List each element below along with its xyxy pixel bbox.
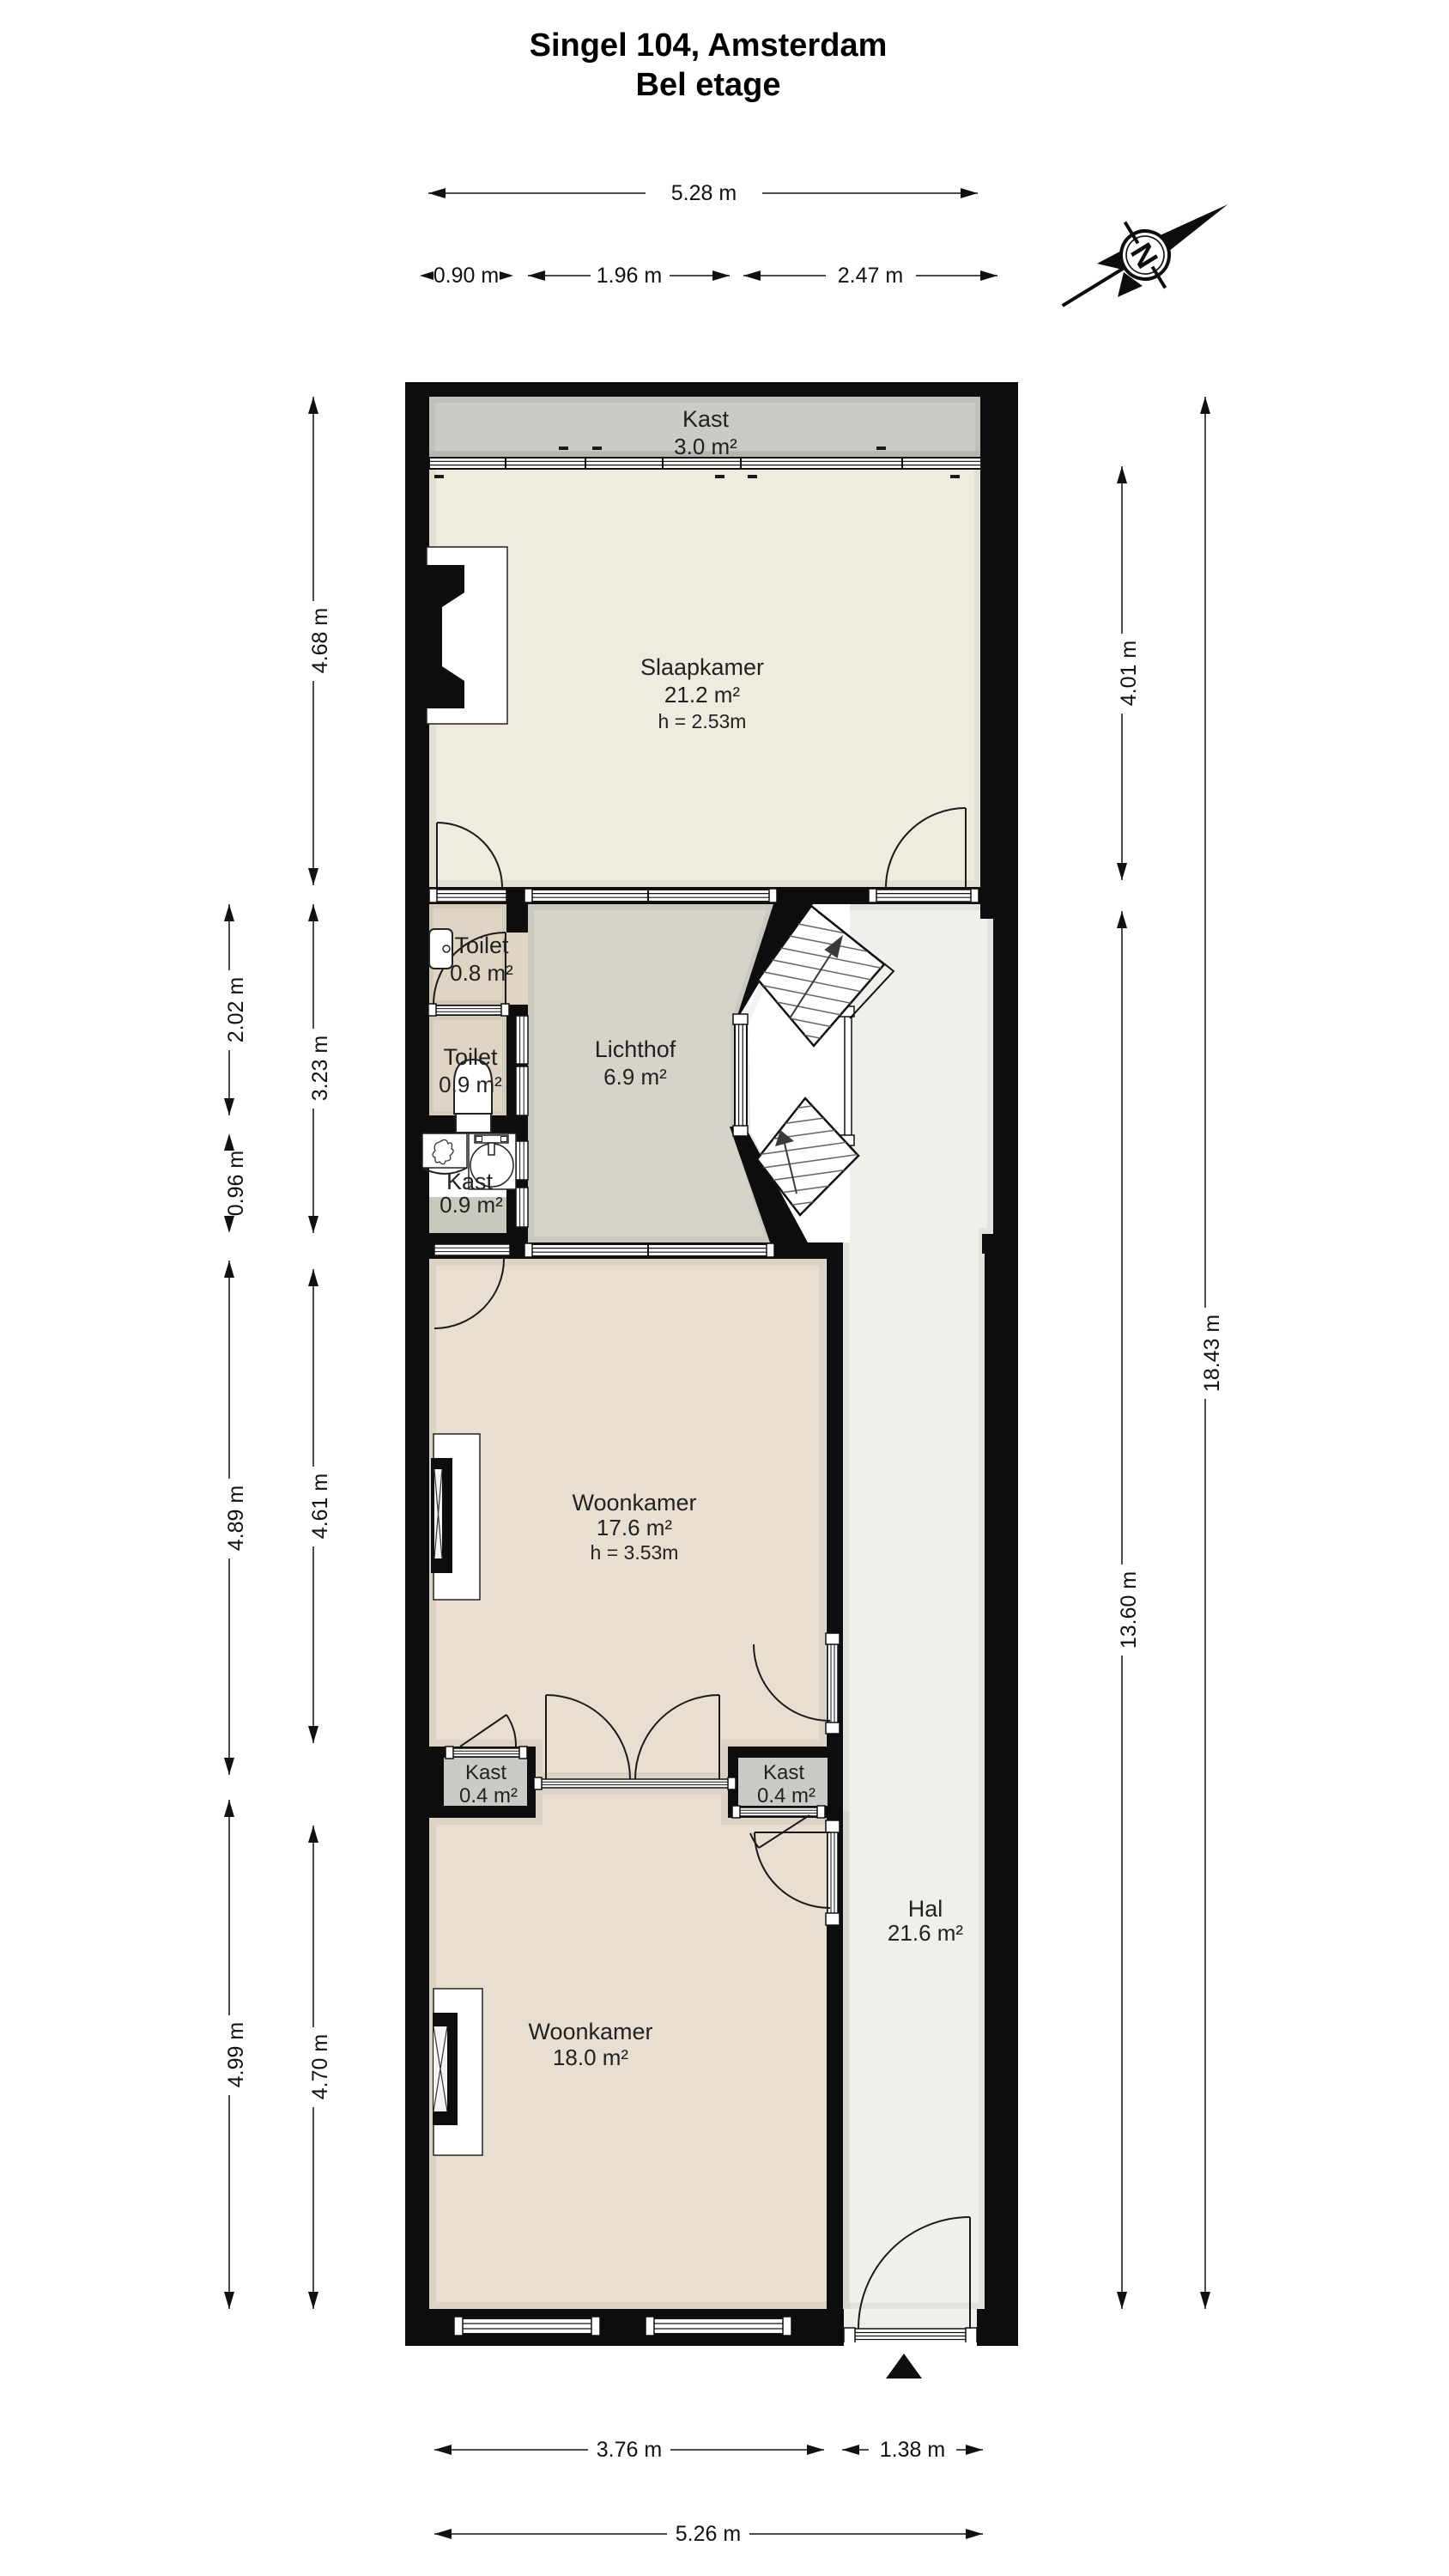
svg-text:3.23 m: 3.23 m bbox=[308, 1036, 332, 1101]
svg-text:0.4 m²: 0.4 m² bbox=[757, 1784, 815, 1807]
svg-text:3.0 m²: 3.0 m² bbox=[674, 434, 737, 459]
svg-text:Hal: Hal bbox=[908, 1896, 943, 1922]
svg-text:h = 3.53m: h = 3.53m bbox=[591, 1541, 679, 1564]
svg-text:4.99 m: 4.99 m bbox=[224, 2022, 248, 2087]
svg-text:1.96 m: 1.96 m bbox=[597, 264, 662, 288]
svg-text:Kast: Kast bbox=[763, 1761, 804, 1784]
svg-text:Woonkamer: Woonkamer bbox=[572, 1490, 696, 1516]
svg-text:Kast: Kast bbox=[682, 406, 730, 432]
svg-text:0.9 m²: 0.9 m² bbox=[440, 1192, 503, 1218]
svg-text:3.76 m: 3.76 m bbox=[597, 2438, 662, 2462]
svg-text:0.90 m: 0.90 m bbox=[433, 264, 499, 288]
svg-text:0.96 m: 0.96 m bbox=[224, 1151, 248, 1216]
svg-text:5.26 m: 5.26 m bbox=[676, 2522, 741, 2546]
svg-text:13.60 m: 13.60 m bbox=[1117, 1571, 1141, 1649]
svg-text:4.61 m: 4.61 m bbox=[308, 1473, 332, 1539]
svg-text:Kast: Kast bbox=[446, 1169, 494, 1194]
svg-text:Woonkamer: Woonkamer bbox=[528, 2019, 652, 2044]
svg-text:2.47 m: 2.47 m bbox=[838, 264, 903, 288]
svg-text:4.70 m: 4.70 m bbox=[308, 2034, 332, 2099]
svg-text:h = 2.53m: h = 2.53m bbox=[658, 710, 747, 732]
svg-text:4.01 m: 4.01 m bbox=[1117, 641, 1141, 706]
svg-text:Kast: Kast bbox=[465, 1761, 506, 1784]
svg-text:0.8 m²: 0.8 m² bbox=[450, 960, 513, 986]
svg-text:1.38 m: 1.38 m bbox=[880, 2438, 945, 2462]
svg-text:6.9 m²: 6.9 m² bbox=[603, 1064, 667, 1090]
svg-text:5.28 m: 5.28 m bbox=[671, 181, 737, 205]
svg-text:21.2 m²: 21.2 m² bbox=[664, 682, 740, 708]
svg-text:4.68 m: 4.68 m bbox=[308, 608, 332, 673]
svg-text:Slaapkamer: Slaapkamer bbox=[640, 654, 764, 680]
svg-text:0.4 m²: 0.4 m² bbox=[459, 1784, 518, 1807]
svg-text:Bel etage: Bel etage bbox=[636, 67, 781, 103]
svg-text:17.6 m²: 17.6 m² bbox=[597, 1515, 672, 1540]
svg-text:2.02 m: 2.02 m bbox=[224, 977, 248, 1042]
svg-text:21.6 m²: 21.6 m² bbox=[888, 1920, 963, 1946]
svg-text:18.0 m²: 18.0 m² bbox=[553, 2044, 628, 2070]
svg-text:0.9 m²: 0.9 m² bbox=[439, 1072, 502, 1097]
svg-text:Toilet: Toilet bbox=[443, 1044, 498, 1070]
svg-text:Lichthof: Lichthof bbox=[595, 1036, 676, 1062]
svg-text:18.43 m: 18.43 m bbox=[1200, 1315, 1224, 1392]
svg-text:Toilet: Toilet bbox=[454, 933, 509, 958]
svg-text:Singel 104, Amsterdam: Singel 104, Amsterdam bbox=[530, 27, 888, 64]
svg-text:4.89 m: 4.89 m bbox=[224, 1485, 248, 1551]
